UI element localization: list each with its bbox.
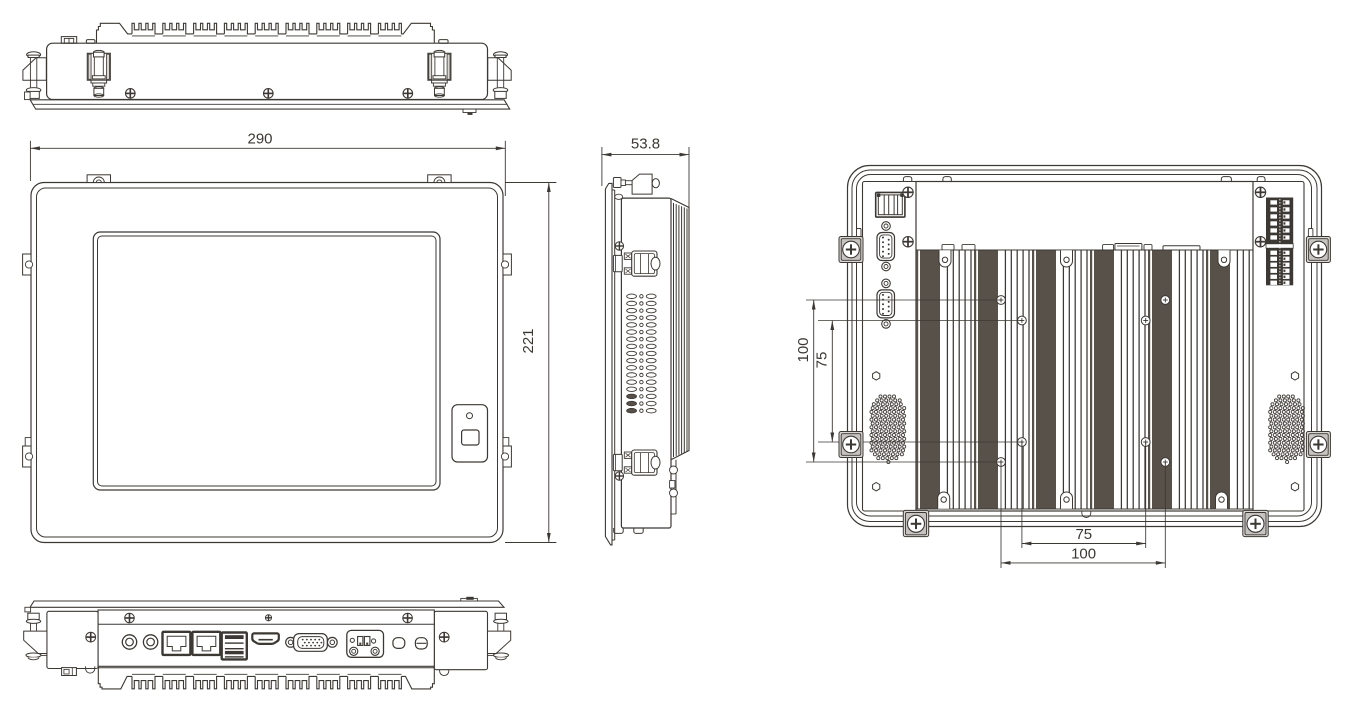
svg-text:100: 100: [795, 337, 812, 362]
svg-text:75: 75: [1075, 526, 1092, 543]
svg-text:290: 290: [247, 131, 272, 148]
svg-text:221: 221: [520, 328, 537, 353]
svg-text:75: 75: [814, 352, 831, 369]
svg-text:100: 100: [1071, 545, 1096, 562]
svg-text:53.8: 53.8: [631, 136, 660, 153]
